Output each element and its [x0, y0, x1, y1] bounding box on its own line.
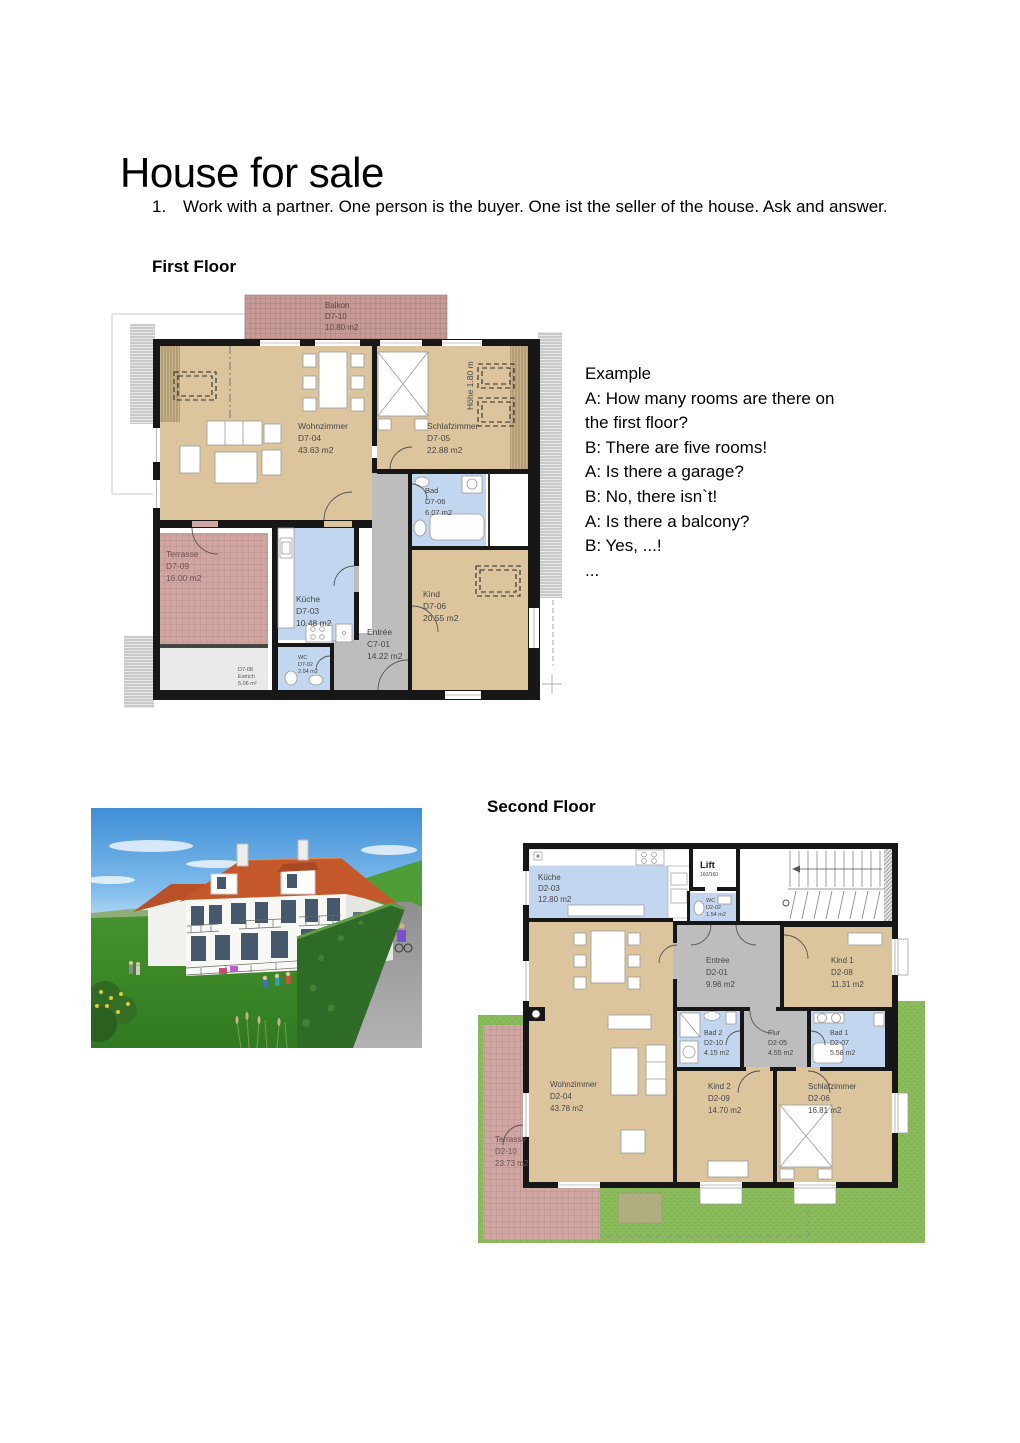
svg-text:14.22 m2: 14.22 m2	[367, 651, 403, 661]
svg-text:D7-02: D7-02	[298, 662, 313, 668]
svg-text:D2-08: D2-08	[831, 968, 853, 977]
instruction-number: 1.	[152, 193, 183, 221]
room2-label-terrasse: Terrasse	[495, 1135, 526, 1144]
svg-text:D7-05: D7-05	[427, 433, 450, 443]
svg-text:D2-05: D2-05	[768, 1040, 787, 1047]
height-note: Höhe 1.80 m	[465, 361, 475, 410]
second-floor-heading: Second Floor	[487, 797, 596, 817]
svg-text:2.04 m2: 2.04 m2	[298, 669, 318, 675]
room2-label-flur: Flur	[768, 1030, 781, 1037]
svg-text:Estrich: Estrich	[238, 674, 255, 680]
svg-text:12.80 m2: 12.80 m2	[538, 895, 572, 904]
room-label-terrasse: Terrasse	[166, 549, 199, 559]
room-label-kueche: Küche	[296, 594, 320, 604]
room2-label-kueche: Küche	[538, 873, 561, 882]
roof-hatch	[130, 324, 155, 424]
room-label-bad: Bad	[425, 486, 438, 495]
room-label-entree: Entrée	[367, 627, 392, 637]
svg-text:D2-04: D2-04	[550, 1092, 572, 1101]
room-label-estrich: D7-08	[238, 667, 253, 673]
svg-text:D2-09: D2-09	[708, 1094, 730, 1103]
svg-text:D7-04: D7-04	[298, 433, 321, 443]
svg-text:23.73 m2: 23.73 m2	[495, 1159, 529, 1168]
svg-text:14.70 m2: 14.70 m2	[708, 1106, 742, 1115]
svg-text:10.80 m2: 10.80 m2	[325, 323, 359, 332]
svg-text:160/160: 160/160	[700, 872, 718, 878]
room2-label-wc: WC	[706, 898, 715, 904]
svg-text:43.78 m2: 43.78 m2	[550, 1104, 584, 1113]
svg-text:43.63 m2: 43.63 m2	[298, 445, 334, 455]
second-floor-plan-image: Küche D2-03 12.80 m2 Lift 160/160 WC D2-…	[478, 843, 925, 1248]
room2-flur	[744, 1011, 807, 1067]
roof-hatch	[124, 636, 154, 708]
svg-text:D7-09: D7-09	[166, 561, 189, 571]
svg-text:11.31 m2: 11.31 m2	[831, 980, 864, 989]
house-photo	[91, 808, 422, 1053]
svg-text:9.96 m2: 9.96 m2	[706, 980, 735, 989]
svg-text:D2-06: D2-06	[808, 1094, 830, 1103]
svg-text:D2-02: D2-02	[706, 905, 721, 911]
room2-label-kind1: Kind 1	[831, 956, 854, 965]
svg-text:5.06 m²: 5.06 m²	[238, 681, 257, 687]
svg-text:D2-01: D2-01	[706, 968, 728, 977]
example-dialogue: Example A: How many rooms are there on t…	[585, 362, 834, 583]
roof-hatch	[538, 332, 562, 598]
room-label-kind: Kind	[423, 589, 440, 599]
instruction-item: 1. Work with a partner. One person is th…	[152, 193, 904, 221]
terrace-step	[618, 1193, 662, 1223]
svg-text:D2-10: D2-10	[704, 1040, 723, 1047]
svg-text:16.81 m2: 16.81 m2	[808, 1106, 842, 1115]
room2-label-lift: Lift	[700, 860, 716, 871]
room-label-balkon: Balkon	[325, 301, 349, 310]
svg-text:D2-10: D2-10	[495, 1147, 517, 1156]
svg-text:22.88 m2: 22.88 m2	[427, 445, 463, 455]
svg-text:16.00 m2: 16.00 m2	[166, 573, 202, 583]
stair-post	[783, 900, 789, 906]
room-label-schlafzimmer: Schlafzimmer	[427, 421, 479, 431]
second-floor-plan-svg: Küche D2-03 12.80 m2 Lift 160/160 WC D2-…	[478, 843, 925, 1243]
svg-text:5.58 m2: 5.58 m2	[830, 1050, 855, 1057]
room2-label-bad1: Bad 1	[830, 1030, 848, 1037]
stair-wall-hatch	[884, 845, 892, 921]
page-title: House for sale	[120, 150, 384, 196]
document-page: House for sale 1. Work with a partner. O…	[0, 0, 1020, 1443]
room2-label-entree: Entrée	[706, 956, 730, 965]
room2-label-bad2: Bad 2	[704, 1030, 722, 1037]
svg-text:C7-01: C7-01	[367, 639, 390, 649]
svg-text:D7-10: D7-10	[325, 312, 347, 321]
instruction-text: Work with a partner. One person is the b…	[183, 193, 904, 221]
first-floor-heading: First Floor	[152, 257, 236, 277]
room-label-wohnzimmer: Wohnzimmer	[298, 421, 348, 431]
svg-text:D2-03: D2-03	[538, 884, 560, 893]
room-label-wc: WC	[298, 655, 307, 661]
svg-text:D2-07: D2-07	[830, 1040, 849, 1047]
svg-text:1.54 m2: 1.54 m2	[706, 912, 726, 918]
room2-entree	[673, 925, 780, 1007]
balcony-area: Balkon D7-10 10.80 m2	[245, 295, 447, 339]
kitchen-counter-strip	[529, 849, 691, 866]
first-floor-plan-image: Balkon D7-10 10.80 m2	[110, 288, 565, 727]
svg-text:D7-03: D7-03	[296, 606, 319, 616]
house-photo-svg	[91, 808, 422, 1048]
svg-text:4.55 m2: 4.55 m2	[768, 1050, 793, 1057]
svg-text:6.07 m2: 6.07 m2	[425, 508, 452, 517]
svg-text:20.55 m2: 20.55 m2	[423, 613, 459, 623]
svg-text:10.48 m2: 10.48 m2	[296, 618, 332, 628]
room2-label-wohnzimmer: Wohnzimmer	[550, 1080, 597, 1089]
svg-text:4.15 m2: 4.15 m2	[704, 1050, 729, 1057]
svg-text:D7-06: D7-06	[425, 497, 445, 506]
room2-label-schlafzimmer: Schlafzimmer	[808, 1082, 857, 1091]
first-floor-plan-svg: Balkon D7-10 10.80 m2	[110, 288, 565, 722]
svg-text:D7-06: D7-06	[423, 601, 446, 611]
room2-label-kind2: Kind 2	[708, 1082, 731, 1091]
